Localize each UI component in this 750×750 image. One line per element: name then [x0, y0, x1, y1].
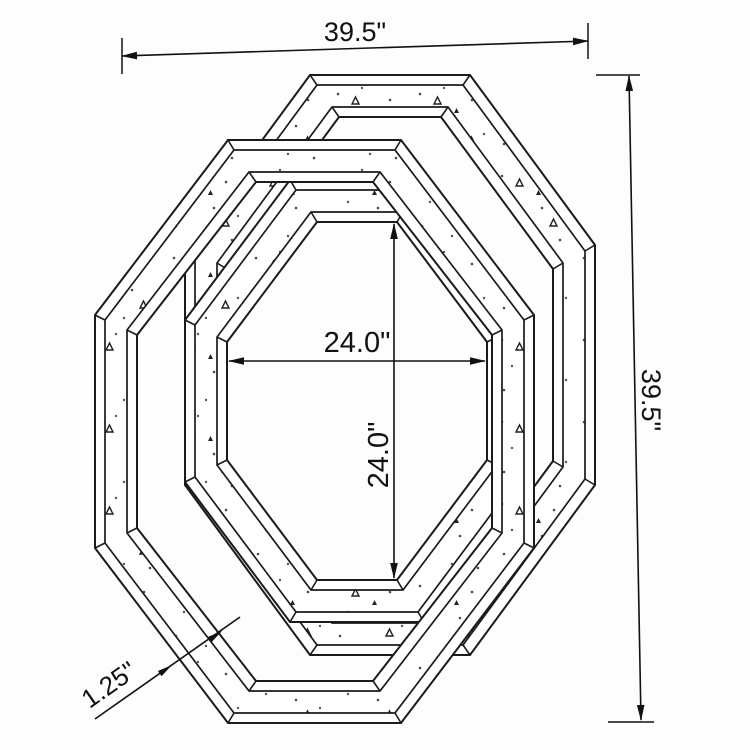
frame-thickness-label: 1.25" — [76, 655, 142, 714]
inner-height-label: 24.0" — [363, 422, 395, 489]
inner-width-label: 24.0" — [324, 327, 391, 359]
technical-drawing: 39.5" 39.5" 24.0" 24.0" 1.25" — [0, 0, 750, 750]
dim-inner-width: 24.0" — [229, 327, 485, 361]
dimension-drawing-page: 39.5" 39.5" 24.0" 24.0" 1.25" — [0, 0, 750, 750]
dim-inner-height: 24.0" — [363, 224, 395, 578]
overall-height-label: 39.5" — [636, 369, 666, 431]
dim-overall-height: 39.5" — [596, 75, 666, 722]
dim-overall-width: 39.5" — [122, 17, 588, 74]
overall-width-label: 39.5" — [324, 17, 386, 47]
